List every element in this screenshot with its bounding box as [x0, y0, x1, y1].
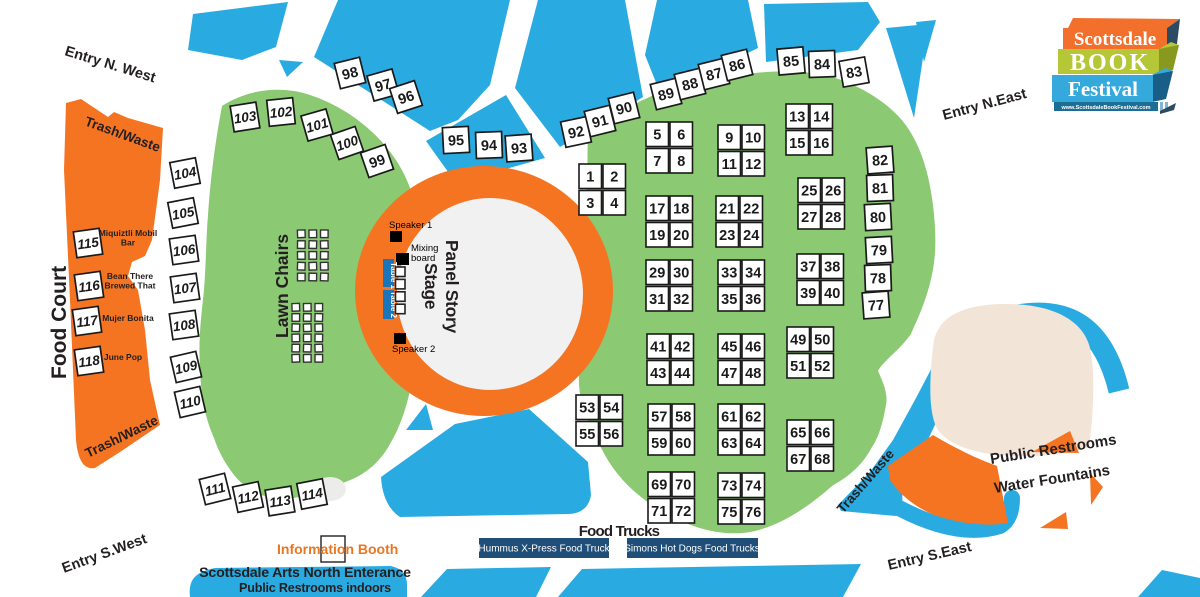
svg-text:25: 25 [801, 183, 817, 199]
svg-text:24: 24 [743, 228, 759, 244]
svg-text:92: 92 [567, 124, 586, 143]
svg-text:93: 93 [510, 141, 527, 158]
svg-text:77: 77 [867, 298, 884, 315]
svg-text:63: 63 [721, 436, 737, 452]
svg-text:5: 5 [653, 127, 661, 143]
svg-text:69: 69 [651, 477, 667, 493]
svg-text:46: 46 [745, 339, 761, 355]
svg-text:16: 16 [813, 136, 829, 152]
svg-text:Mujer Bonita: Mujer Bonita [102, 313, 154, 323]
svg-text:56: 56 [603, 427, 619, 443]
svg-text:33: 33 [721, 265, 737, 281]
svg-text:65: 65 [790, 425, 806, 441]
svg-text:19: 19 [649, 228, 665, 244]
svg-text:26: 26 [825, 183, 841, 199]
svg-text:58: 58 [675, 409, 691, 425]
svg-text:3: 3 [586, 196, 594, 212]
svg-text:28: 28 [825, 210, 841, 226]
svg-text:11: 11 [722, 157, 737, 173]
svg-text:74: 74 [745, 478, 761, 494]
svg-text:81: 81 [872, 181, 889, 198]
svg-text:95: 95 [448, 133, 465, 150]
svg-text:39: 39 [800, 286, 816, 302]
svg-text:35: 35 [721, 292, 737, 308]
svg-text:18: 18 [673, 201, 689, 217]
svg-text:Speaker 2: Speaker 2 [392, 344, 435, 355]
svg-text:Bean ThereBrewed That: Bean ThereBrewed That [104, 271, 155, 291]
svg-text:59: 59 [651, 436, 667, 452]
svg-text:83: 83 [845, 64, 864, 83]
svg-text:BOOK: BOOK [1070, 50, 1150, 76]
svg-text:Food Trucks: Food Trucks [579, 523, 660, 540]
svg-text:94: 94 [481, 138, 498, 155]
svg-text:64: 64 [745, 436, 761, 452]
svg-text:54: 54 [603, 400, 619, 416]
svg-text:48: 48 [745, 366, 761, 382]
svg-text:21: 21 [719, 201, 735, 217]
svg-text:42: 42 [674, 339, 690, 355]
svg-text:79: 79 [871, 243, 888, 260]
svg-text:www.ScottsdaleBookFestival.com: www.ScottsdaleBookFestival.com [1060, 105, 1150, 111]
svg-text:108: 108 [172, 316, 197, 334]
svg-text:14: 14 [813, 109, 829, 125]
svg-text:Scottsdale Arts North Enteranc: Scottsdale Arts North Enterance [199, 565, 411, 581]
svg-text:80: 80 [870, 210, 887, 227]
svg-text:52: 52 [814, 359, 830, 375]
svg-text:71: 71 [651, 504, 667, 520]
svg-text:Simons Hot Dogs Food Trucks: Simons Hot Dogs Food Trucks [624, 544, 760, 555]
svg-text:49: 49 [790, 332, 806, 348]
svg-text:82: 82 [871, 153, 888, 170]
svg-text:2: 2 [610, 169, 618, 185]
svg-text:8: 8 [677, 154, 685, 170]
svg-text:60: 60 [675, 436, 691, 452]
svg-text:9: 9 [725, 130, 733, 146]
svg-text:30: 30 [673, 265, 689, 281]
svg-text:118: 118 [77, 352, 101, 370]
svg-text:47: 47 [721, 366, 737, 382]
svg-text:40: 40 [824, 286, 840, 302]
svg-text:117: 117 [75, 312, 100, 330]
svg-text:17: 17 [649, 201, 665, 217]
svg-text:Lawn Chairs: Lawn Chairs [272, 234, 292, 338]
svg-text:7: 7 [653, 154, 661, 170]
svg-text:44: 44 [674, 366, 690, 382]
svg-text:Scottsdale: Scottsdale [1074, 29, 1156, 50]
svg-text:1: 1 [586, 169, 594, 185]
svg-text:85: 85 [782, 54, 799, 71]
svg-text:13: 13 [789, 109, 805, 125]
svg-text:37: 37 [800, 259, 816, 275]
svg-text:115: 115 [76, 234, 100, 252]
svg-text:106: 106 [172, 241, 197, 259]
svg-text:Speaker 1: Speaker 1 [389, 220, 432, 231]
svg-text:72: 72 [675, 504, 691, 520]
svg-text:22: 22 [743, 201, 759, 217]
svg-text:50: 50 [814, 332, 830, 348]
svg-text:W I D E R: W I D E R [1058, 25, 1063, 46]
svg-text:32: 32 [673, 292, 689, 308]
svg-text:36: 36 [745, 292, 761, 308]
svg-text:51: 51 [790, 359, 806, 375]
svg-text:70: 70 [675, 477, 691, 493]
svg-text:61: 61 [721, 409, 737, 425]
svg-text:29: 29 [649, 265, 665, 281]
svg-text:41: 41 [650, 339, 666, 355]
svg-text:62: 62 [745, 409, 761, 425]
svg-text:E N J O Y: E N J O Y [1047, 80, 1052, 100]
svg-text:34: 34 [745, 265, 761, 281]
svg-text:55: 55 [579, 427, 595, 443]
svg-text:68: 68 [814, 452, 830, 468]
svg-text:June Pop: June Pop [104, 352, 142, 362]
svg-text:84: 84 [814, 57, 831, 74]
svg-text:66: 66 [814, 425, 830, 441]
svg-text:38: 38 [824, 259, 840, 275]
svg-text:Festival: Festival [1068, 77, 1138, 101]
svg-text:76: 76 [745, 505, 761, 521]
svg-text:15: 15 [789, 136, 805, 152]
svg-text:116: 116 [77, 277, 101, 295]
svg-text:10: 10 [745, 130, 761, 146]
svg-text:31: 31 [649, 292, 665, 308]
svg-text:23: 23 [719, 228, 735, 244]
svg-text:45: 45 [721, 339, 737, 355]
svg-text:53: 53 [579, 400, 595, 416]
svg-text:73: 73 [721, 478, 737, 494]
svg-text:67: 67 [790, 452, 806, 468]
svg-text:102: 102 [269, 104, 293, 121]
svg-text:78: 78 [870, 271, 887, 288]
svg-text:Hummus X-Press Food Truck: Hummus X-Press Food Truck [478, 544, 610, 555]
svg-text:12: 12 [745, 157, 761, 173]
svg-text:Public Restrooms indoors: Public Restrooms indoors [239, 581, 391, 595]
svg-text:57: 57 [651, 409, 667, 425]
svg-text:6: 6 [677, 127, 685, 143]
svg-text:N E W S: N E W S [1053, 54, 1058, 71]
svg-text:20: 20 [673, 228, 689, 244]
svg-text:75: 75 [721, 505, 737, 521]
svg-text:4: 4 [610, 196, 618, 212]
svg-text:27: 27 [801, 210, 817, 226]
svg-text:Food Court: Food Court [48, 266, 71, 379]
svg-text:43: 43 [650, 366, 666, 382]
svg-text:Information Booth: Information Booth [277, 541, 398, 557]
